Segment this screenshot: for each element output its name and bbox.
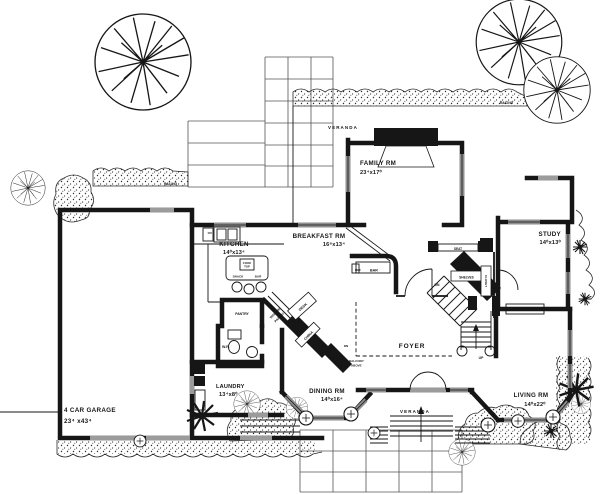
windows <box>214 154 570 420</box>
labels: VERANDA RAILING RAILING FAMILY RM 23⁴x17… <box>64 101 562 425</box>
label-laundry-dims: 13⁴x8⁰ <box>219 391 238 398</box>
label-dining-dims: 14⁰x16⁴ <box>321 396 343 403</box>
label-foyer: FOYER <box>399 343 425 350</box>
label-laundry: LAUNDRY <box>216 384 245 390</box>
label-oven: OV <box>208 231 212 235</box>
label-family-dims: 23⁴x17⁰ <box>360 169 383 176</box>
label-family-rm: FAMILY RM <box>360 160 396 167</box>
label-dn-dining: DN <box>344 344 348 348</box>
floor-plan-page: VERANDA RAILING RAILING FAMILY RM 23⁴x17… <box>0 0 600 494</box>
label-railing-left: RAILING <box>164 182 178 186</box>
label-bar: BAR <box>370 269 378 273</box>
label-living-dims: 14⁰x22⁰ <box>524 401 546 408</box>
label-kitchen: KITCHEN <box>219 241 249 248</box>
label-dining: DINING RM <box>309 388 345 395</box>
label-garage: 4 CAR GARAGE <box>64 407 116 414</box>
label-breakfast: BREAKFAST RM <box>293 233 346 240</box>
floor-plan-drawing: VERANDA RAILING RAILING FAMILY RM 23⁴x17… <box>0 0 600 494</box>
label-railing-right: RAILING <box>500 101 514 105</box>
label-closet: CLOSET <box>484 275 488 287</box>
label-up: UP <box>479 356 484 360</box>
label-veranda-bottom: VERANDA <box>400 409 430 414</box>
label-garage-dims: 23⁴ x43⁴ <box>64 418 92 425</box>
label-kitchen-dims: 14⁰x13⁴ <box>223 249 245 256</box>
label-balcony-2: ABOVE <box>351 364 362 368</box>
label-study: STUDY <box>539 231 562 238</box>
label-living: LIVING RM <box>514 392 549 399</box>
label-shelves: SHELVES <box>459 276 474 280</box>
label-dn: DN <box>435 283 440 287</box>
label-snack: SNACK <box>233 275 245 279</box>
label-wr: W.R. <box>222 345 230 349</box>
label-pantry: PANTRY <box>235 312 249 316</box>
label-cook-top: TOP <box>244 264 250 268</box>
label-snack-bar: BAR <box>255 275 262 279</box>
label-veranda-top: VERANDA <box>328 125 358 130</box>
label-study-dims: 14⁰x13⁰ <box>540 239 562 246</box>
label-seat: SEAT <box>454 247 462 251</box>
label-balcony-1: BALCONY <box>349 359 364 363</box>
label-breakfast-dims: 16⁸x13⁴ <box>323 242 345 248</box>
label-ref: REF <box>355 268 361 272</box>
